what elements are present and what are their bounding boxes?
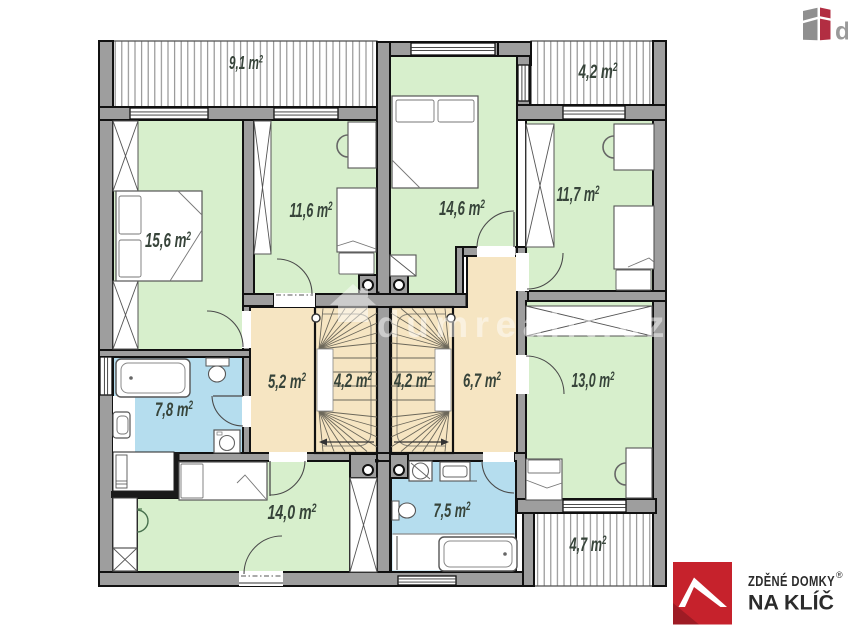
svg-text:d: d [835,18,848,46]
svg-text:7,8 m2: 7,8 m2 [155,398,193,421]
svg-text:4,2 m2: 4,2 m2 [333,369,372,392]
svg-text:14,0 m2: 14,0 m2 [268,501,317,524]
svg-text:13,0 m2: 13,0 m2 [572,369,615,392]
svg-text:15,6 m2: 15,6 m2 [145,229,191,252]
svg-text:4,2 m2: 4,2 m2 [393,369,432,392]
svg-text:11,6 m2: 11,6 m2 [290,199,333,222]
svg-text:9,1 m2: 9,1 m2 [229,53,263,73]
svg-text:dumrealit.cz: dumrealit.cz [377,304,671,345]
svg-text:4,2 m2: 4,2 m2 [578,60,618,83]
svg-text:14,6 m2: 14,6 m2 [439,197,485,220]
svg-text:11,7 m2: 11,7 m2 [557,183,600,206]
svg-text:®: ® [836,570,843,580]
svg-text:ZDĚNÉ DOMKY: ZDĚNÉ DOMKY [748,572,835,590]
svg-text:6,7 m2: 6,7 m2 [463,369,501,392]
svg-text:4,7 m2: 4,7 m2 [569,533,607,556]
svg-text:NA KLÍČ: NA KLÍČ [748,591,834,615]
svg-text:5,2 m2: 5,2 m2 [268,370,306,393]
svg-text:7,5 m2: 7,5 m2 [434,499,471,522]
